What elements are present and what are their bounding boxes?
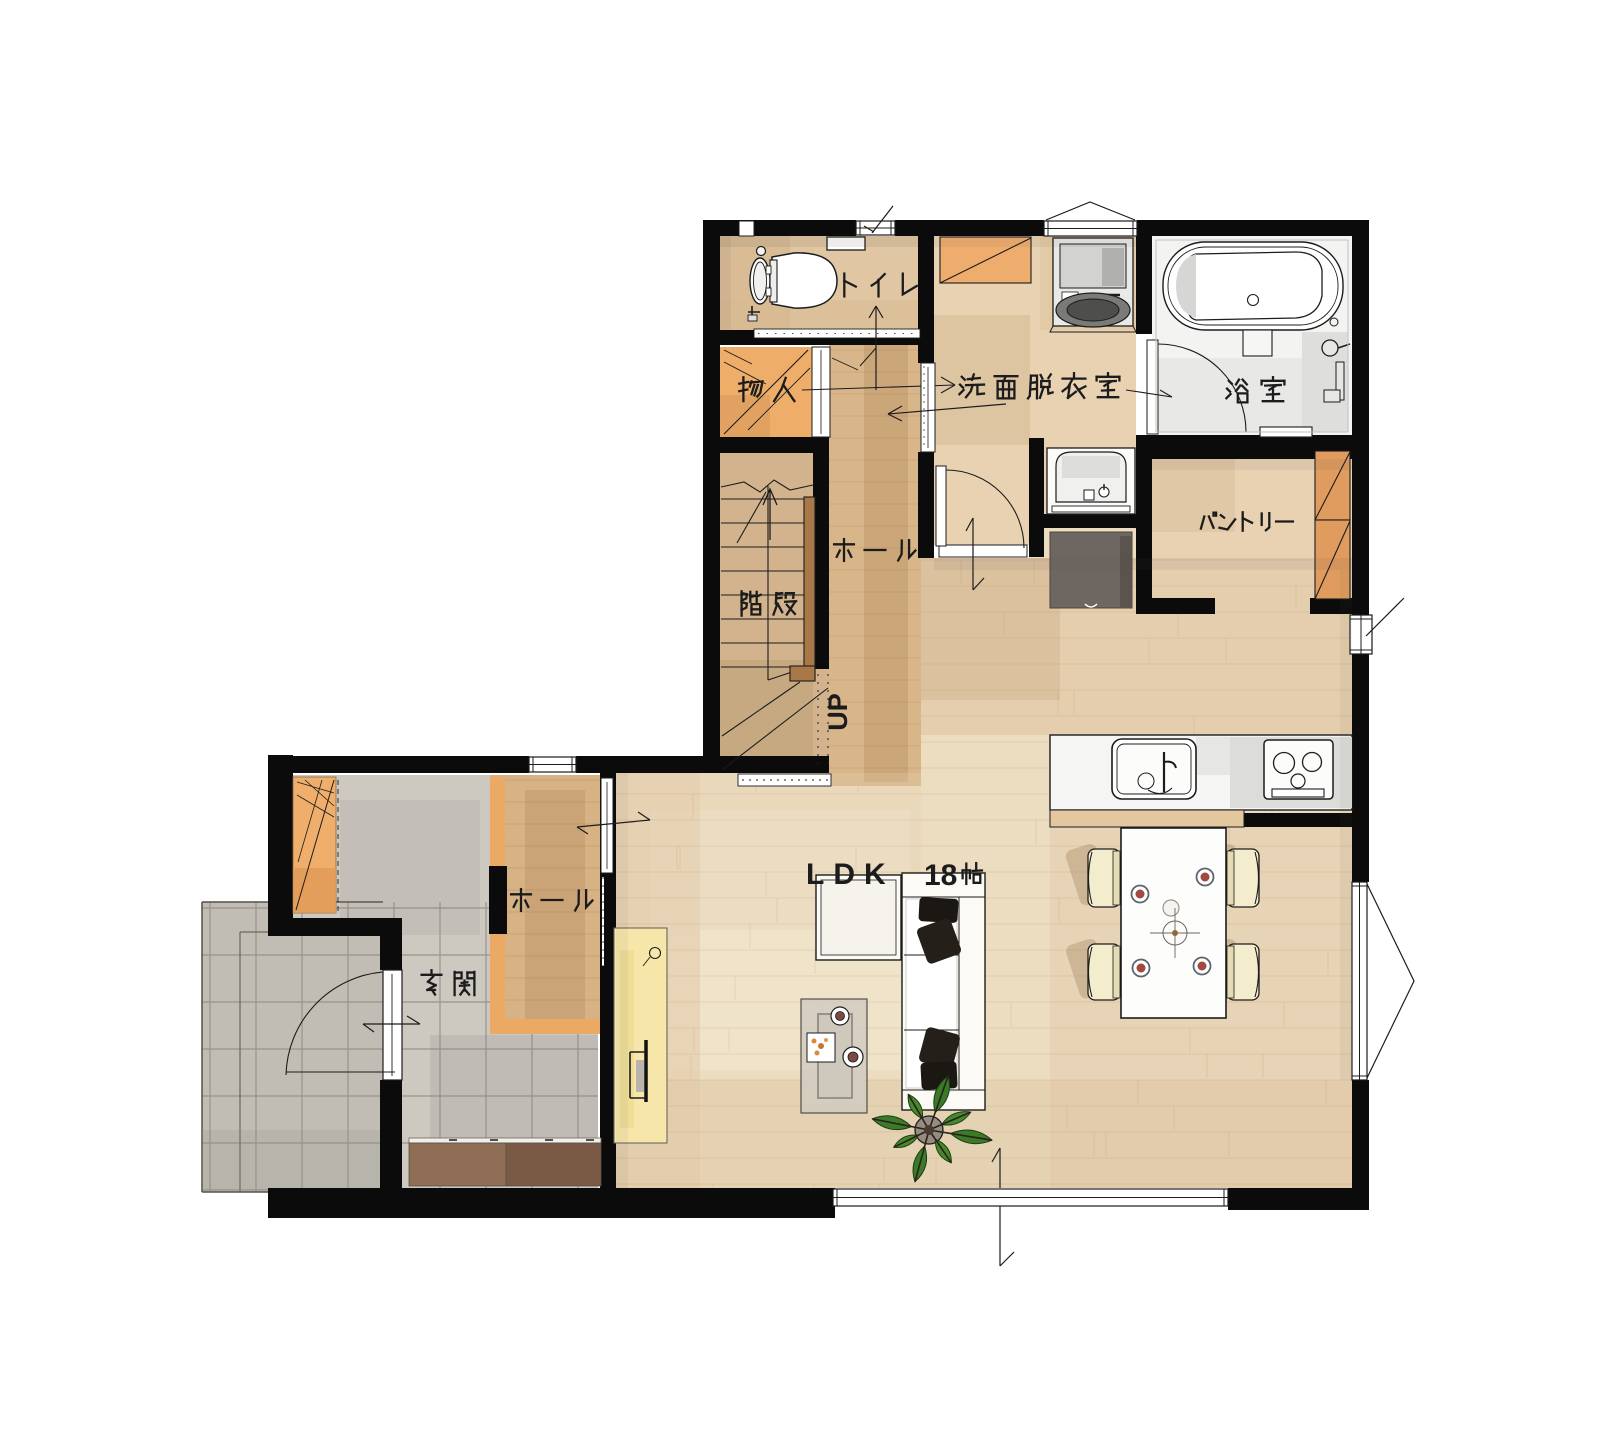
- svg-text:LDK: LDK: [806, 858, 895, 891]
- svg-text:18: 18: [924, 859, 957, 892]
- svg-text:UP: UP: [823, 693, 853, 731]
